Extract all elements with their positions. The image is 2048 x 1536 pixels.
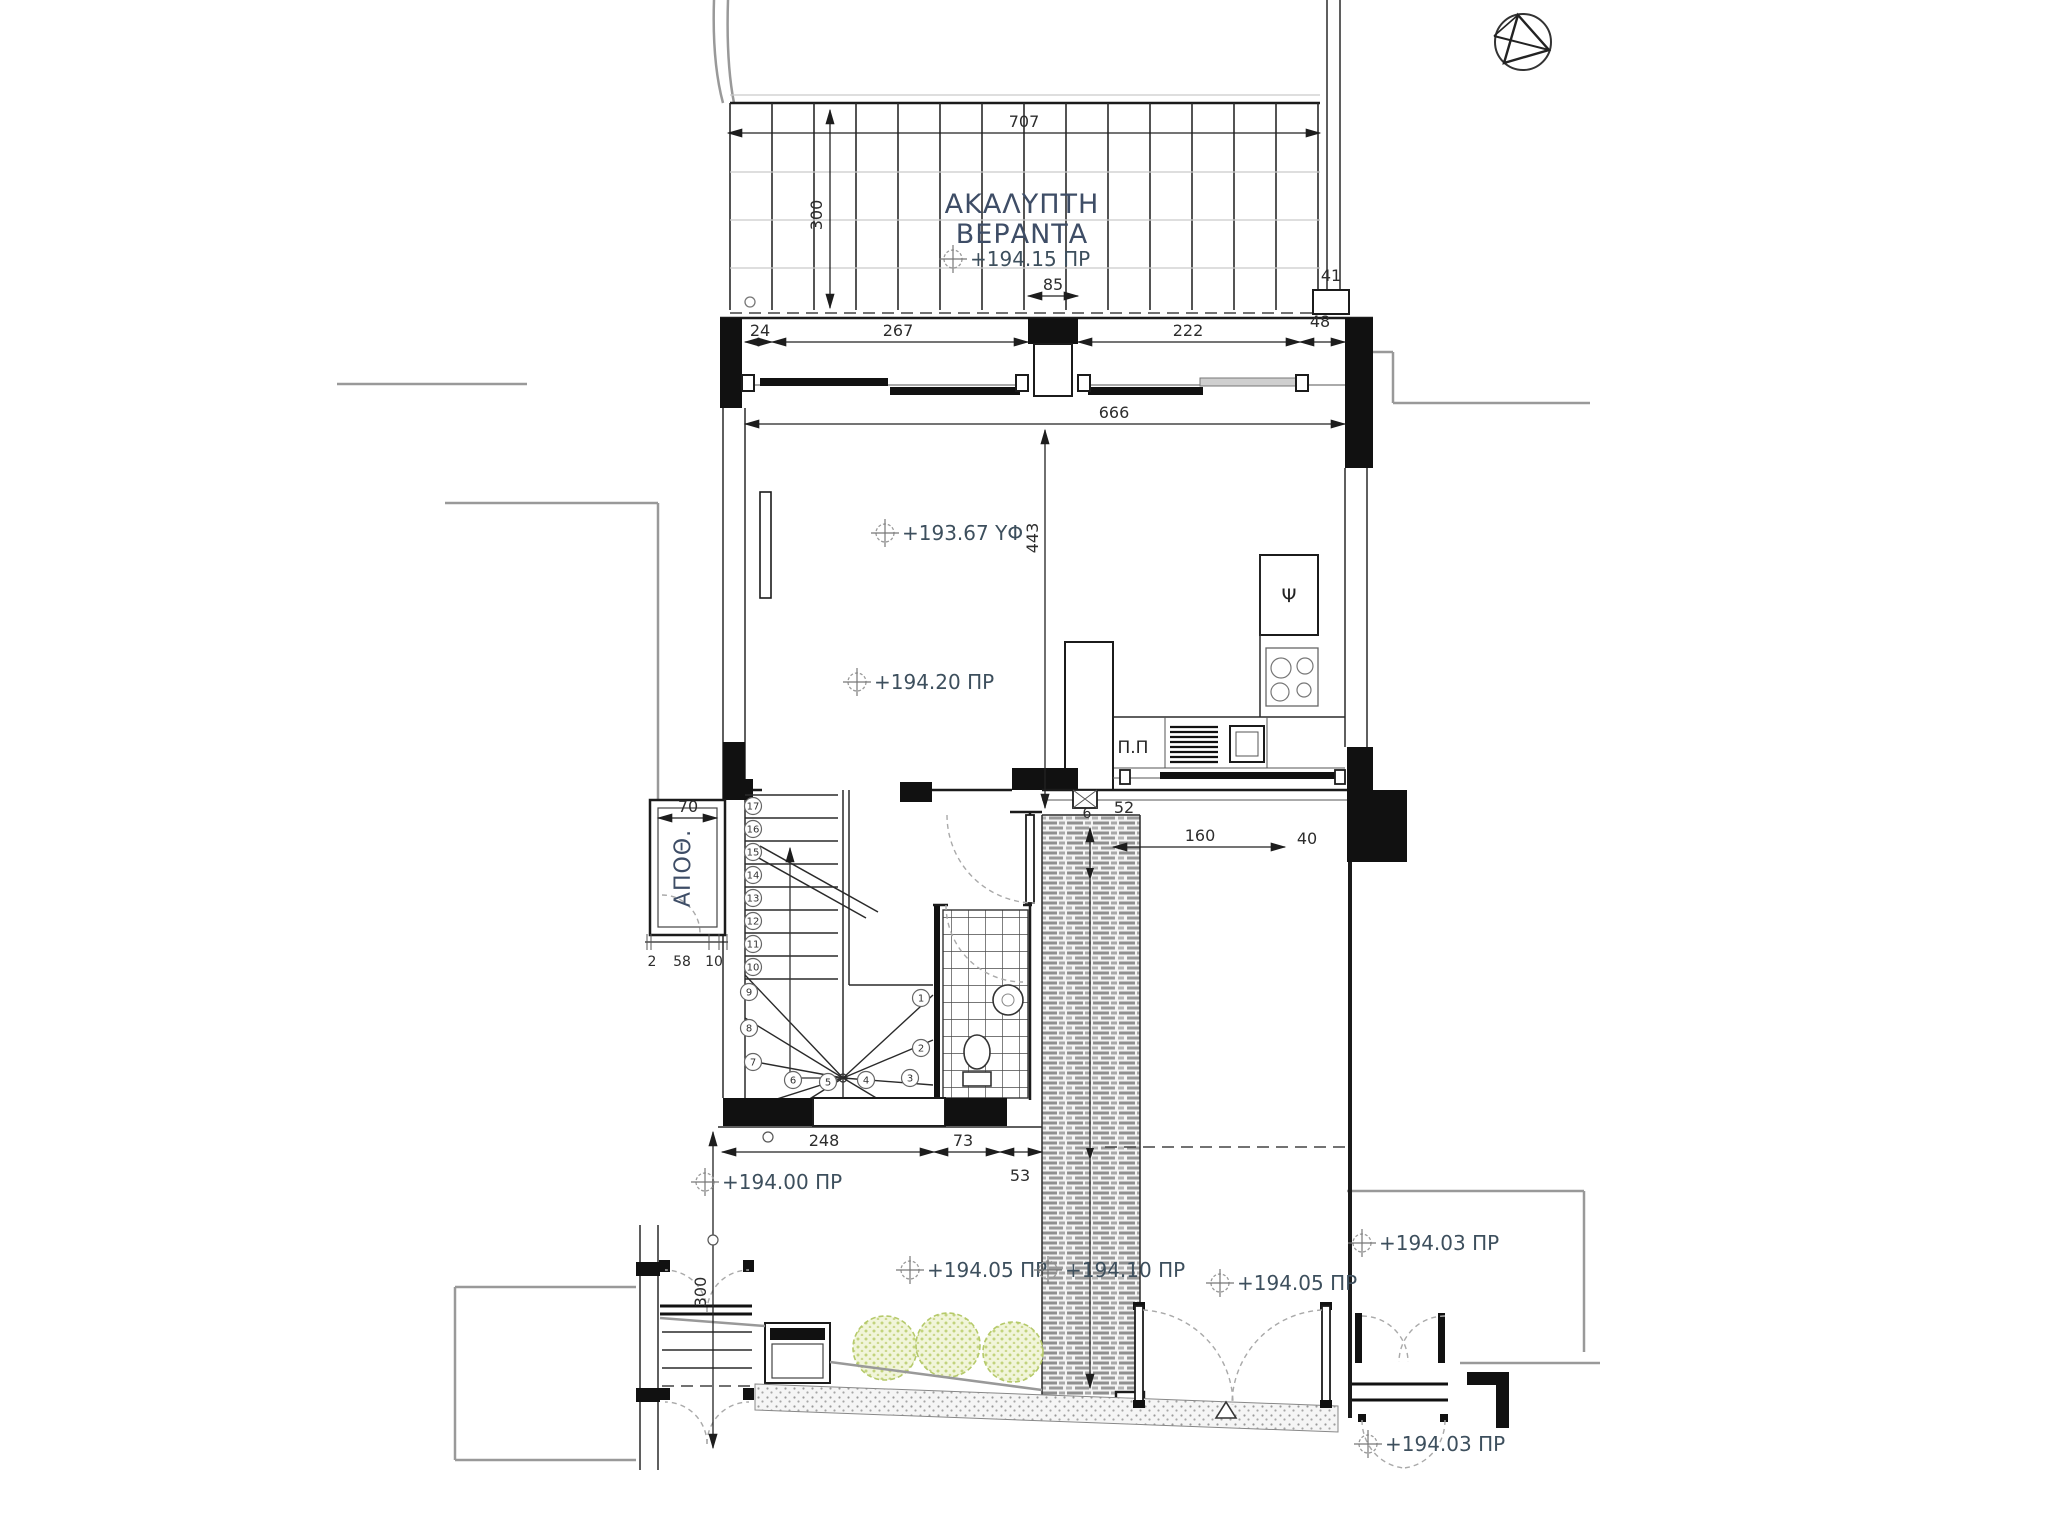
- wall-pier: [1345, 318, 1373, 468]
- level-label-entrance-court: +194.05 ΠΡ: [1206, 1269, 1357, 1297]
- counter-label: Π.Π: [1118, 738, 1149, 758]
- dim-column: 41: [1321, 266, 1341, 285]
- wc: [933, 905, 1032, 1098]
- walkway-ramp: [1042, 815, 1144, 1418]
- level-label-neighbor-upper: +194.03 ΠΡ: [1348, 1229, 1499, 1257]
- wc-basin: [993, 985, 1023, 1015]
- dim-seg24: 24: [750, 321, 770, 340]
- toilet-bowl: [964, 1035, 990, 1069]
- step-number: 13: [747, 894, 760, 905]
- veranda-title-line1: ΑΚΑΛΥΠΤΗ: [945, 189, 1100, 220]
- staircase: 1716151413121110987654321: [741, 790, 934, 1105]
- dim-stair248: 248: [809, 1131, 840, 1150]
- entrance-door-leaf: [1026, 815, 1034, 903]
- kitchen-south-wall: [1012, 768, 1347, 800]
- north-arrow-icon: [1494, 14, 1551, 70]
- kitchen: Ψ Π.Π: [1065, 555, 1345, 790]
- level-text: +194.03 ΠΡ: [1385, 1432, 1505, 1456]
- step-number: 7: [750, 1058, 756, 1069]
- level-label-yard-west: +194.00 ΠΡ: [691, 1168, 842, 1196]
- sliding-window-east: [1078, 375, 1345, 395]
- dim-counter160: 160: [1185, 826, 1216, 845]
- kitchen-peninsula: [1065, 642, 1113, 790]
- dim-walk53: 53: [1010, 1166, 1030, 1185]
- floor-plan-drawing: Ψ Π.Π: [0, 0, 2048, 1536]
- south-wall-band: [718, 1098, 1042, 1142]
- entrance-door-swing: [947, 815, 1035, 903]
- dim-storage10: 10: [705, 954, 723, 970]
- fridge-label: Ψ: [1282, 585, 1297, 607]
- dim-storage2: 2: [648, 954, 657, 970]
- sink: [1230, 726, 1264, 762]
- dim-side-yard: 300: [691, 1277, 710, 1308]
- level-text: +194.05 ΠΡ: [927, 1258, 1047, 1282]
- wall-panel: [760, 492, 771, 598]
- toilet-tank: [963, 1072, 991, 1086]
- dim-wc73: 73: [953, 1131, 973, 1150]
- dim-storage58: 58: [673, 954, 691, 970]
- level-text: +194.10 ΠΡ: [1065, 1258, 1185, 1282]
- storage-label: ΑΠΟΘ.: [671, 829, 696, 907]
- dim-step52: 52: [1114, 798, 1134, 817]
- wall-pier: [1028, 318, 1078, 344]
- step-number: 1: [918, 994, 924, 1005]
- dim-interior-depth: 443: [1023, 523, 1042, 554]
- level-text: +194.20 ΠΡ: [874, 670, 994, 694]
- level-text: +193.67 ΥΦ: [902, 521, 1023, 545]
- court-double-gate: [1133, 1302, 1332, 1408]
- step-number: 5: [825, 1078, 831, 1089]
- stair-winder-treads: [745, 975, 933, 1105]
- garden-bushes: [853, 1313, 1043, 1382]
- dim-counter40: 40: [1297, 829, 1317, 848]
- winder-tread: [843, 995, 933, 1078]
- dim-step6: 6: [1083, 806, 1092, 822]
- step-number: 2: [918, 1044, 924, 1055]
- step-number: 15: [747, 848, 760, 859]
- step-number: 4: [863, 1076, 869, 1087]
- door-post: [1034, 344, 1072, 396]
- step-number: 11: [747, 940, 760, 951]
- step-number: 6: [790, 1076, 796, 1087]
- step-number: 17: [747, 802, 760, 813]
- sliding-window-west: [742, 375, 1028, 395]
- level-text: +194.00 ΠΡ: [722, 1170, 842, 1194]
- level-text: +194.03 ΠΡ: [1379, 1231, 1499, 1255]
- dim-top-width: 707: [1009, 112, 1040, 131]
- dim-seg48: 48: [1310, 312, 1330, 331]
- west-yard-gates: [636, 1225, 754, 1470]
- planter: [765, 1323, 830, 1383]
- dim-seg267: 267: [883, 321, 914, 340]
- veranda-title-line2: ΒΕΡΑΝΤΑ: [956, 219, 1089, 250]
- survey-point: [745, 297, 755, 307]
- wall-pier: [720, 318, 742, 408]
- storage-room: ΑΠΟΘ.: [650, 779, 753, 935]
- step-number: 12: [747, 917, 760, 928]
- step-number: 10: [747, 963, 760, 974]
- dim-seg222: 222: [1173, 321, 1204, 340]
- step-number: 14: [747, 871, 760, 882]
- cooktop: [1266, 648, 1318, 706]
- level-text: +194.15 ΠΡ: [970, 247, 1090, 271]
- dim-interior-width: 666: [1099, 403, 1130, 422]
- dish-rack: [1170, 727, 1218, 762]
- step-number: 16: [747, 825, 760, 836]
- dim-storage-width: 70: [678, 797, 698, 816]
- step-number: 3: [907, 1074, 913, 1085]
- level-label-garden: +194.05 ΠΡ: [896, 1256, 1047, 1284]
- dim-door: 85: [1043, 275, 1063, 294]
- level-label-interior: +194.20 ΠΡ: [843, 668, 994, 696]
- step-number: 8: [746, 1024, 752, 1035]
- step-number: 9: [746, 988, 752, 999]
- level-label-floor-structure: +193.67 ΥΦ: [871, 519, 1023, 547]
- level-label-neighbor-lower: +194.03 ΠΡ: [1354, 1430, 1505, 1458]
- dim-veranda-depth: 300: [807, 200, 826, 231]
- level-text: +194.05 ΠΡ: [1237, 1271, 1357, 1295]
- winder-tread: [843, 1078, 933, 1085]
